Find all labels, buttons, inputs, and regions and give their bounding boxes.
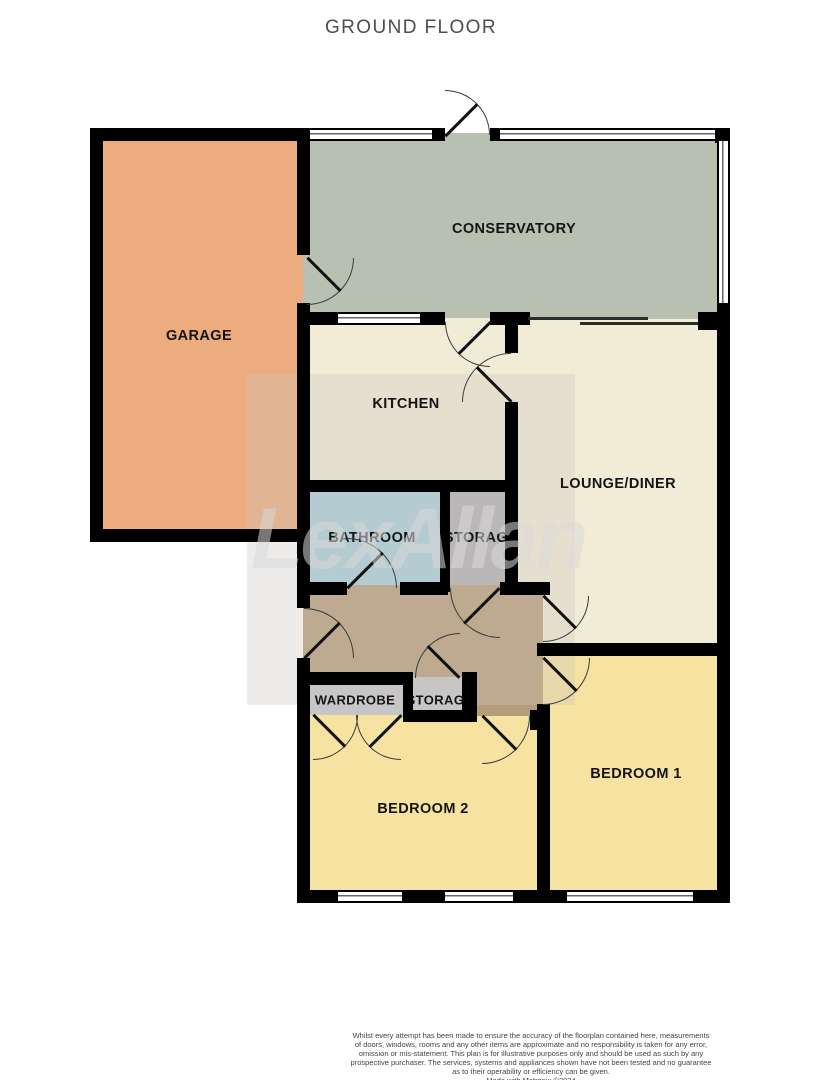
wall-bedroom1-top	[537, 643, 730, 656]
window-conservatory-top-right	[500, 128, 715, 141]
wall-bottom-d	[693, 890, 730, 903]
wall-kitchen-lounge-stub	[505, 325, 518, 353]
window-bedroom2-right	[445, 890, 513, 903]
floorplan-canvas: GROUND FLOOR GARAGE CONSERVATORY KITCHEN…	[0, 0, 822, 1080]
disclaimer-line: prospective purchaser. The services, sys…	[316, 1058, 746, 1067]
wall-storage2-bottom	[403, 710, 477, 722]
wall-bedroom-divider	[537, 704, 550, 903]
label-lounge-diner: LOUNGE/DINER	[560, 476, 676, 492]
wall-hall-bottom-corner	[530, 710, 550, 730]
wall-cons-top-b	[490, 128, 500, 141]
disclaimer-line: Whilst every attempt has been made to en…	[316, 1031, 746, 1040]
wall-left-upper	[297, 128, 310, 255]
disclaimer-line: as to their operability or efficiency ca…	[316, 1067, 746, 1076]
wall-garage-top	[90, 128, 310, 141]
wall-bottom-a	[297, 890, 338, 903]
watermark-text: LexAllan	[233, 496, 603, 582]
sliding-door-line-2	[580, 322, 698, 325]
wall-bottom-b	[402, 890, 445, 903]
wall-garage-left	[90, 128, 103, 542]
wall-cons-bottom-a	[310, 312, 338, 325]
label-wardrobe: WARDROBE	[315, 693, 395, 708]
disclaimer-line: omission or mis-statement. This plan is …	[316, 1049, 746, 1058]
disclaimer: Whilst every attempt has been made to en…	[316, 1031, 746, 1080]
sliding-door-line-1	[528, 317, 648, 320]
label-garage: GARAGE	[166, 328, 232, 344]
page-title: GROUND FLOOR	[0, 17, 822, 39]
wall-left-lower	[297, 658, 310, 903]
wall-cons-bottom-t	[490, 312, 530, 325]
window-conservatory-top-left	[310, 128, 432, 141]
wall-wardrobe-top	[297, 672, 413, 685]
label-kitchen: KITCHEN	[372, 396, 439, 412]
wall-kitchen-lounge	[505, 402, 518, 480]
disclaimer-line: Made with Metropix ©2024	[316, 1076, 746, 1080]
window-bedroom2-left	[338, 890, 402, 903]
window-conservatory-right	[717, 141, 730, 303]
window-kitchen	[338, 312, 420, 325]
label-bedroom-2: BEDROOM 2	[377, 801, 468, 817]
wall-cons-bottom-corner	[698, 312, 730, 330]
label-bedroom-1: BEDROOM 1	[590, 766, 681, 782]
disclaimer-line: of doors, windows, rooms and any other i…	[316, 1040, 746, 1049]
wall-bottom-c	[513, 890, 567, 903]
wall-cons-bottom-b	[420, 312, 445, 325]
label-conservatory: CONSERVATORY	[452, 221, 576, 237]
window-bedroom1	[567, 890, 693, 903]
